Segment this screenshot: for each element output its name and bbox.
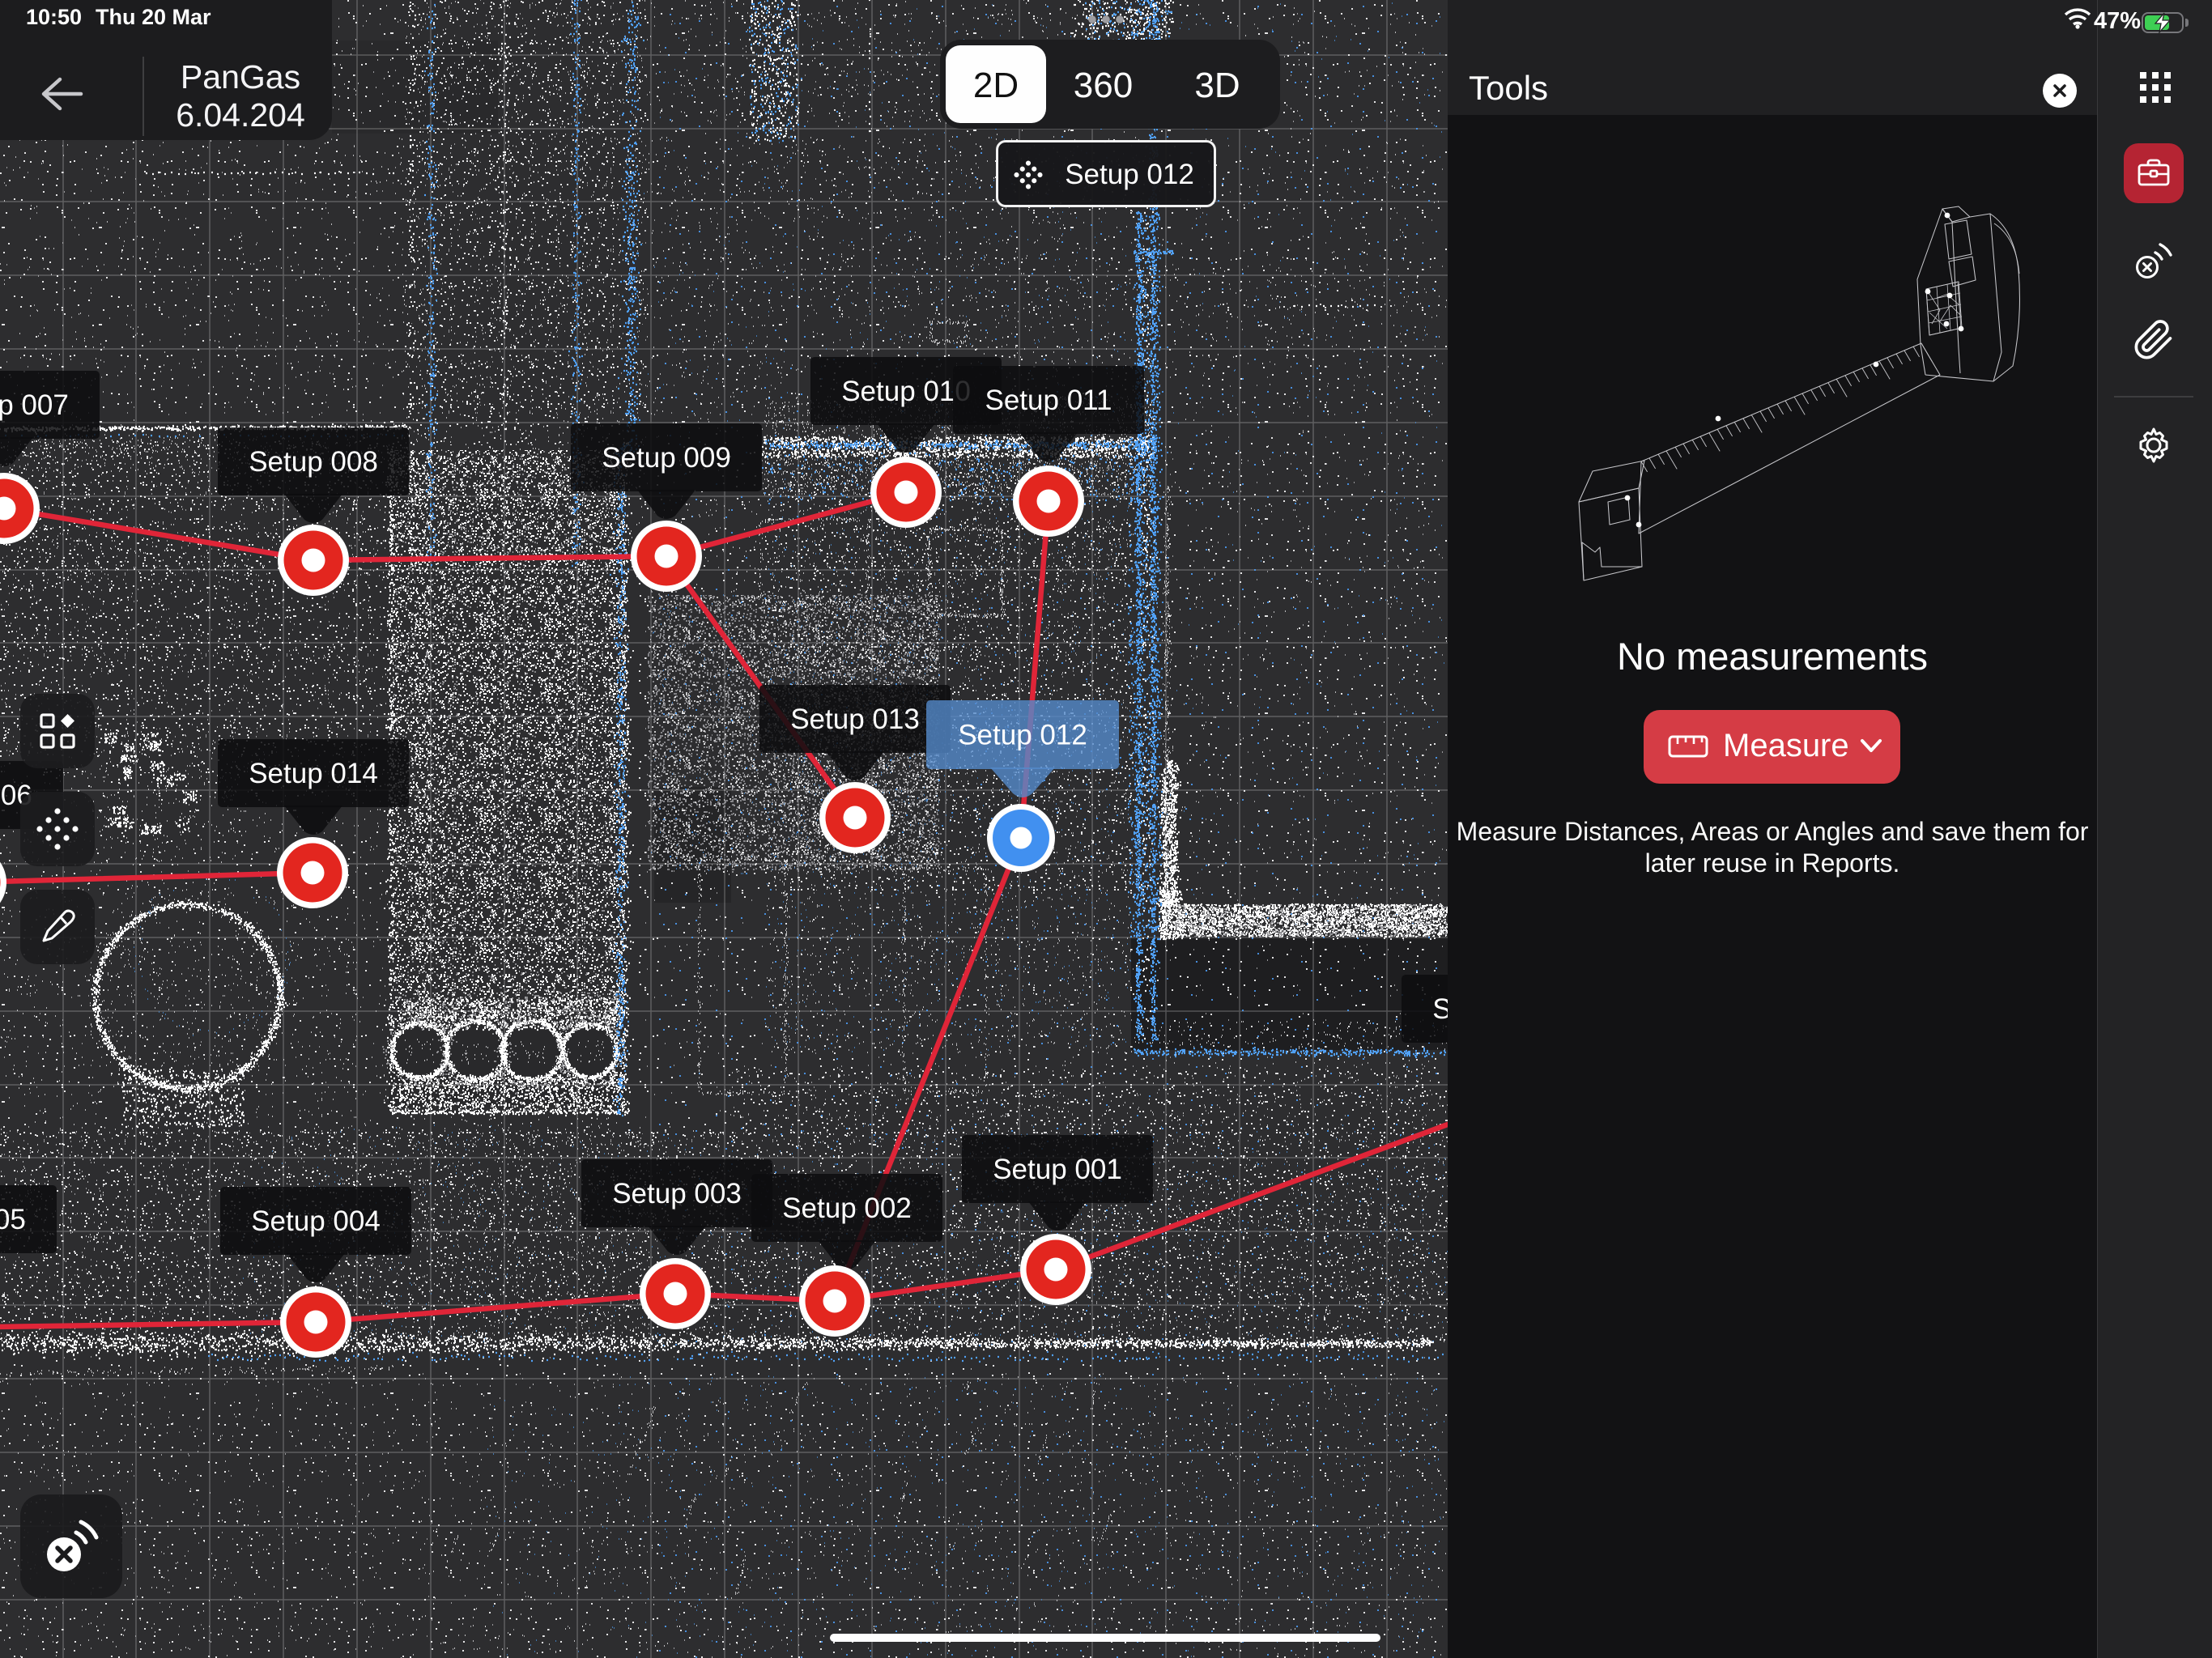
svg-text:Setup 011: Setup 011 [985, 385, 1112, 416]
svg-text:Setup 003: Setup 003 [612, 1178, 742, 1209]
svg-text:Setup 013: Setup 013 [790, 704, 920, 735]
svg-text:Setup 002: Setup 002 [782, 1192, 912, 1224]
svg-text:Setup 001: Setup 001 [993, 1154, 1122, 1185]
svg-text:Setup 008: Setup 008 [249, 446, 378, 478]
svg-text:Setup 004: Setup 004 [251, 1205, 381, 1237]
svg-text:Setup 012: Setup 012 [958, 720, 1087, 751]
svg-text:Setup 009: Setup 009 [602, 442, 731, 474]
svg-text:Setup 005: Setup 005 [0, 1204, 26, 1235]
svg-text:Setup 010: Setup 010 [841, 376, 971, 407]
svg-text:Setup 014: Setup 014 [249, 758, 378, 789]
svg-text:Setup 007: Setup 007 [0, 389, 69, 421]
svg-text:Setup 015: Setup 015 [1432, 993, 1448, 1025]
